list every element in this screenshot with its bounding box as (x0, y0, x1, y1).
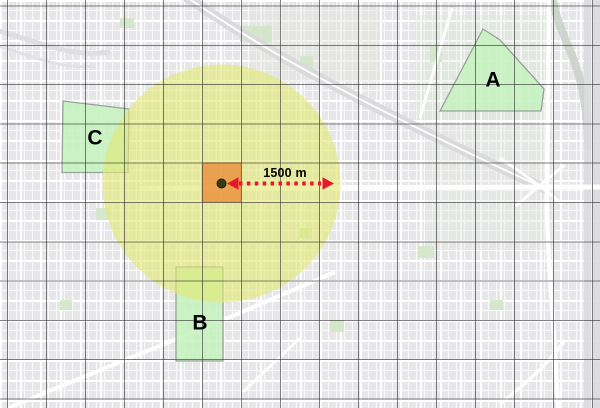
buffer-distance-label: 1500 m (263, 166, 307, 180)
zone-b-label: B (192, 312, 207, 335)
zone-c-label: C (87, 127, 102, 150)
center-point[interactable] (217, 179, 226, 188)
annotation-overlay: 1500 m A B C (0, 0, 600, 408)
map-canvas[interactable]: 1500 m A B C (0, 0, 600, 408)
arrowhead-right (323, 177, 335, 189)
arrowhead-left (227, 177, 239, 189)
zone-a-label: A (485, 69, 500, 92)
